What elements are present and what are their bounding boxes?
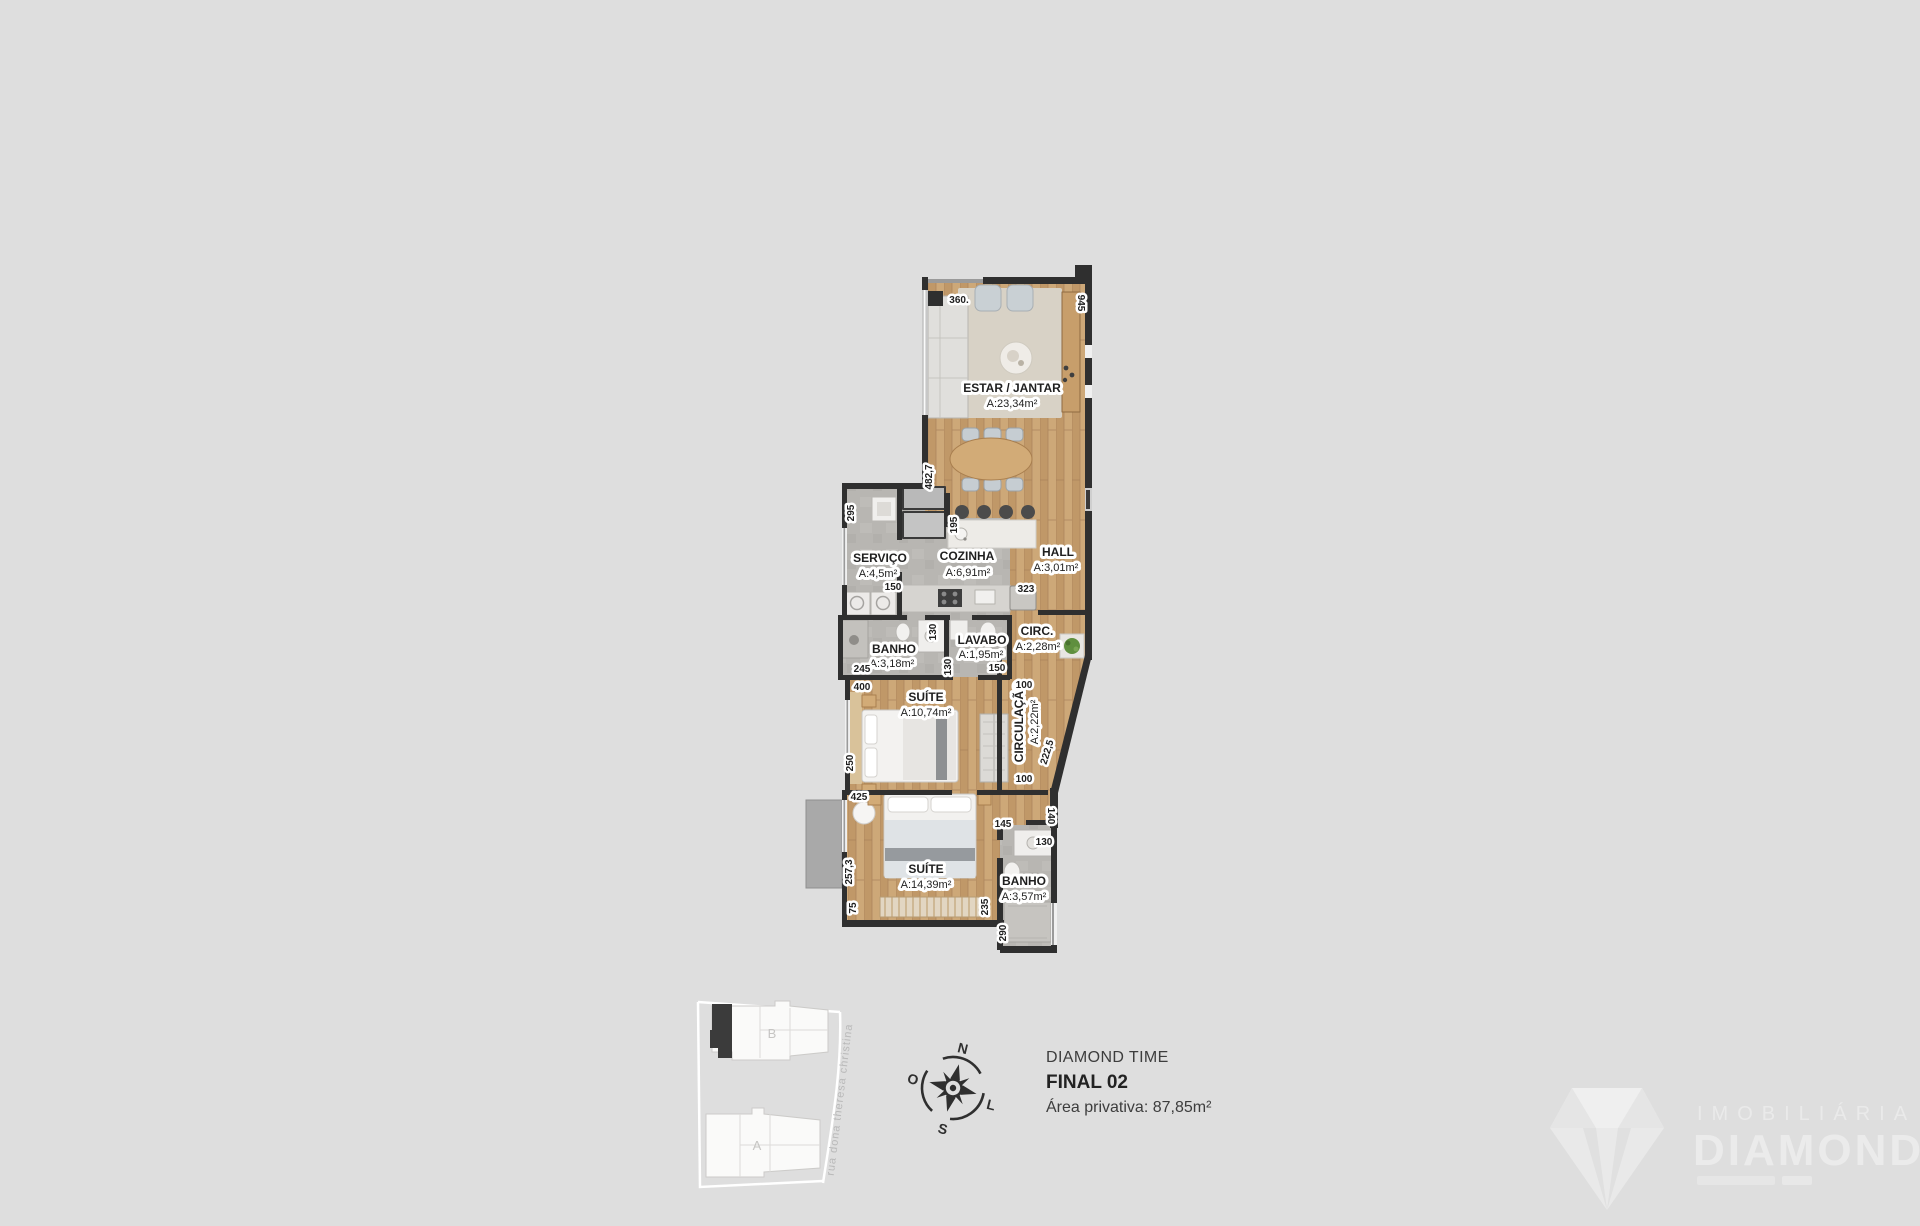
site-key: B A rua dona theresa christina — [698, 1001, 855, 1187]
room-label: SUÍTE — [908, 689, 943, 704]
room-label: COZINHA — [940, 549, 995, 563]
dimension-label: 235 — [980, 898, 991, 915]
dimension-label: 425 — [851, 792, 868, 803]
building-a-letter: A — [753, 1138, 762, 1153]
kitchen-tall-units — [903, 487, 945, 538]
compass-south: S — [936, 1120, 949, 1138]
plant — [1060, 634, 1084, 658]
room-area: A:10,74m² — [901, 707, 952, 719]
watermark-tagline-bar — [1782, 1176, 1812, 1185]
dimension-label: 150 — [885, 582, 902, 593]
dimension-label: 100 — [1016, 774, 1033, 785]
dimension-label: 145 — [995, 819, 1012, 830]
room-label: BANHO — [1002, 874, 1046, 888]
room-label: CIRCULAÇÃO — [1011, 682, 1026, 763]
dimension-label: 130 — [1036, 837, 1053, 848]
room-area: A:3,57m² — [1002, 891, 1047, 903]
building-a: A — [706, 1108, 820, 1177]
room-label: SUÍTE — [908, 861, 943, 876]
project-name: DIAMOND TIME — [1046, 1049, 1211, 1067]
room-label: LAVABO — [958, 633, 1007, 647]
room-label: SERVIÇO — [853, 551, 907, 565]
dimension-label: 250 — [845, 754, 856, 771]
dimension-label: 75 — [848, 902, 859, 914]
entry-door — [1086, 490, 1090, 509]
kitchen-sink — [975, 590, 995, 604]
room-area: A:2,28m² — [1016, 641, 1061, 653]
building-b-letter: B — [768, 1026, 777, 1041]
private-area: Área privativa: 87,85m² — [1046, 1099, 1211, 1117]
dimension-label: 150 — [989, 663, 1006, 674]
floor-plan: ESTAR / JANTAR A:23,34m² SERVIÇO A:4,5m²… — [0, 0, 1920, 1226]
dimension-label: 400 — [854, 682, 871, 693]
dimension-label: 295 — [846, 504, 857, 521]
diamond-icon — [1550, 1088, 1664, 1210]
dining-table — [950, 438, 1032, 480]
dimension-label: 245 — [854, 664, 871, 675]
dimension-label: 945 — [1075, 295, 1086, 312]
brochure-page: ESTAR / JANTAR A:23,34m² SERVIÇO A:4,5m²… — [0, 0, 1920, 1226]
compass-north: N — [956, 1039, 970, 1057]
dimension-label: 130 — [928, 623, 939, 640]
room-area: A:3,01m² — [1034, 562, 1079, 574]
dimension-label: 290 — [998, 924, 1009, 941]
dimension-label: 360. — [949, 295, 969, 306]
armchair — [975, 285, 1001, 311]
kitchen-island — [948, 520, 1036, 548]
dimension-label: 130 — [943, 658, 954, 675]
dimension-label: 100 — [1016, 680, 1033, 691]
room-area: A:1,95m² — [959, 649, 1004, 661]
coffee-table — [1000, 342, 1032, 374]
armchair — [1007, 285, 1033, 311]
sofa — [928, 296, 968, 418]
street-name: rua dona theresa christina — [825, 1023, 856, 1177]
unit-legend: DIAMOND TIME FINAL 02 Área privativa: 87… — [1046, 1049, 1211, 1117]
dimension-label: 482,7 — [924, 464, 935, 489]
room-area: A:2,22m² — [1029, 699, 1041, 744]
pillar — [928, 291, 943, 306]
room-area: A:3,18m² — [870, 658, 915, 670]
compass-east: L — [985, 1096, 998, 1114]
building-b: B — [710, 1001, 828, 1060]
nightstand — [862, 695, 876, 707]
watermark-line1: IMOBILIÁRIA — [1697, 1102, 1916, 1125]
watermark-logo: IMOBILIÁRIA DIAMOND — [1550, 1088, 1920, 1210]
unit-number: FINAL 02 — [1046, 1072, 1211, 1094]
dimension-label: 195 — [949, 516, 960, 533]
room-label: BANHO — [872, 642, 916, 656]
watermark-line2: DIAMOND — [1693, 1126, 1920, 1175]
dimension-label: 257,3 — [844, 859, 855, 884]
kitchen-counter — [900, 585, 1036, 612]
watermark-tagline-bar — [1697, 1176, 1775, 1185]
room-area: A:6,91m² — [946, 567, 991, 579]
compass-rose: N S O L — [896, 1029, 1009, 1147]
room-area: A:14,39m² — [901, 879, 952, 891]
room-label: ESTAR / JANTAR — [963, 381, 1061, 395]
room-label: HALL — [1042, 545, 1074, 559]
cooktop — [938, 589, 962, 607]
room-area: A:23,34m² — [987, 398, 1038, 410]
room-area: A:4,5m² — [859, 568, 898, 580]
room-label: CIRC. — [1021, 624, 1054, 638]
adjacent-structure — [806, 800, 842, 888]
wardrobe-hatched — [880, 897, 987, 917]
dimension-label: 323 — [1018, 584, 1035, 595]
dimension-label: 140 — [1045, 808, 1056, 825]
wardrobe — [980, 714, 1008, 782]
compass-west: O — [906, 1070, 921, 1088]
